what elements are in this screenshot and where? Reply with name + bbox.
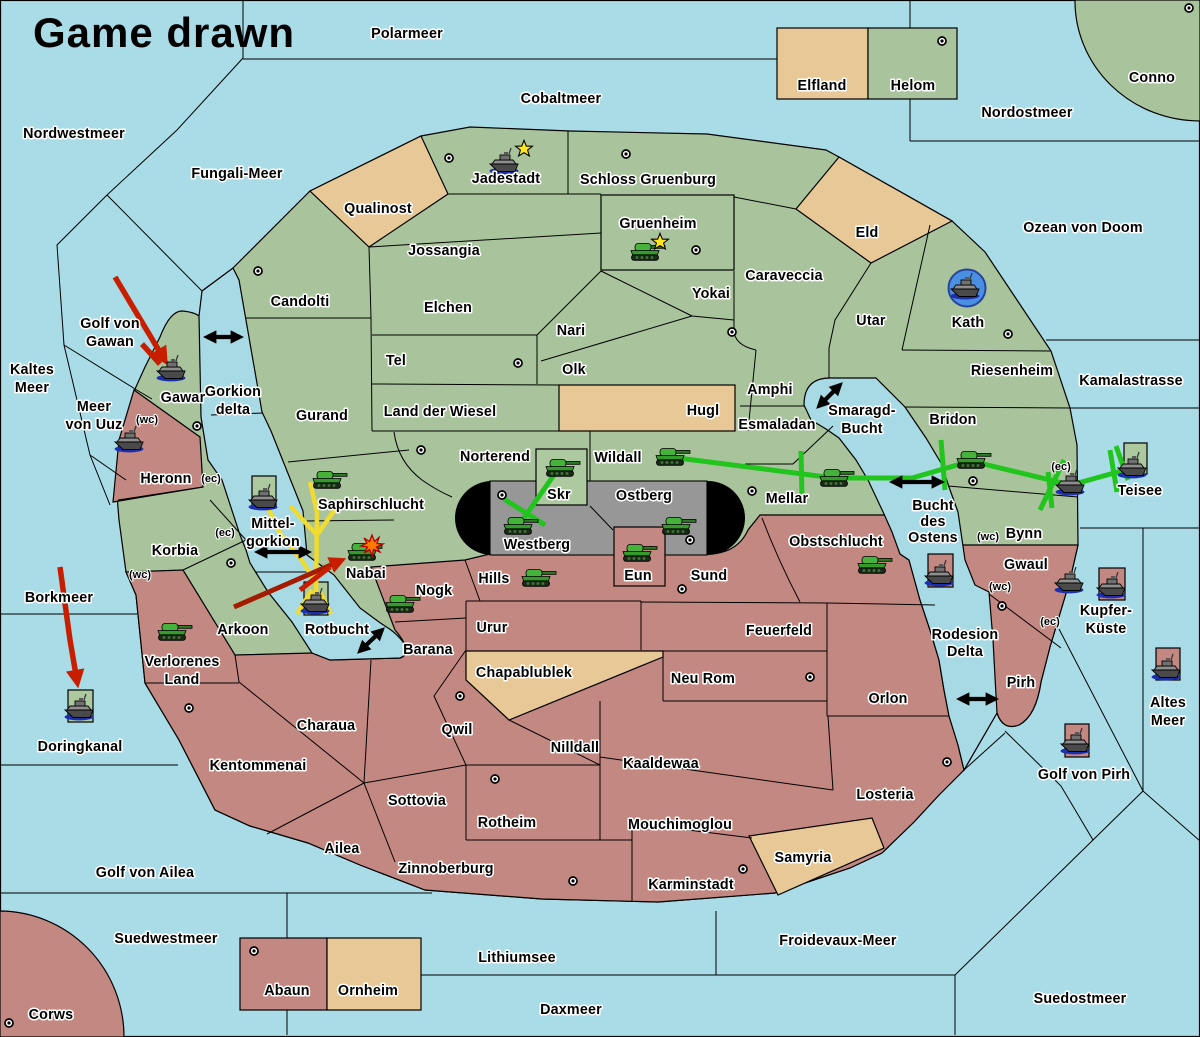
svg-text:von Uuz: von Uuz — [66, 417, 123, 433]
svg-text:Suedostmeer: Suedostmeer — [1034, 991, 1127, 1007]
svg-text:Lithiumsee: Lithiumsee — [478, 950, 555, 966]
svg-text:Smaragd-: Smaragd- — [828, 403, 896, 419]
svg-text:Golf von Ailea: Golf von Ailea — [96, 865, 195, 881]
svg-text:Jadestadt: Jadestadt — [472, 171, 541, 187]
svg-text:delta: delta — [216, 402, 251, 418]
svg-text:Qualinost: Qualinost — [344, 201, 412, 217]
svg-text:Bucht: Bucht — [912, 498, 954, 514]
svg-text:Conno: Conno — [1129, 70, 1175, 86]
svg-text:Gwaul: Gwaul — [1004, 557, 1048, 573]
svg-text:Feuerfeld: Feuerfeld — [746, 623, 812, 639]
svg-text:Urur: Urur — [477, 620, 508, 636]
svg-text:Bynn: Bynn — [1006, 526, 1043, 542]
svg-text:Orlon: Orlon — [868, 691, 907, 707]
svg-text:Wildall: Wildall — [594, 450, 641, 466]
svg-text:Obstschlucht: Obstschlucht — [789, 534, 883, 550]
svg-text:(wc): (wc) — [136, 414, 158, 426]
svg-text:Fungali-Meer: Fungali-Meer — [191, 166, 283, 182]
svg-text:Hills: Hills — [478, 571, 509, 587]
svg-text:Heronn: Heronn — [140, 471, 191, 487]
svg-text:Cobaltmeer: Cobaltmeer — [521, 91, 602, 107]
svg-text:Nordostmeer: Nordostmeer — [981, 105, 1072, 121]
svg-text:Abaun: Abaun — [264, 983, 309, 999]
svg-text:Neu Rom: Neu Rom — [671, 671, 735, 687]
svg-text:Nari: Nari — [557, 323, 586, 339]
svg-text:Amphi: Amphi — [747, 382, 792, 398]
svg-text:Kamalastrasse: Kamalastrasse — [1079, 373, 1183, 389]
svg-text:Bucht: Bucht — [841, 421, 883, 437]
svg-text:Gurand: Gurand — [296, 408, 348, 424]
svg-text:Mellar: Mellar — [766, 491, 809, 507]
svg-text:Ornheim: Ornheim — [338, 983, 398, 999]
svg-text:Charaua: Charaua — [297, 718, 356, 734]
svg-text:Eun: Eun — [624, 568, 652, 584]
svg-text:Korbia: Korbia — [152, 543, 199, 559]
svg-text:Gorkion: Gorkion — [205, 384, 261, 400]
svg-text:gorkion: gorkion — [246, 534, 300, 550]
svg-text:Esmaladan: Esmaladan — [738, 417, 815, 433]
svg-text:Nordwestmeer: Nordwestmeer — [23, 126, 125, 142]
svg-text:Nogk: Nogk — [416, 583, 453, 599]
svg-text:Doringkanal: Doringkanal — [38, 739, 123, 755]
svg-text:Kentommenai: Kentommenai — [210, 758, 307, 774]
svg-text:Land der Wiesel: Land der Wiesel — [384, 404, 497, 420]
svg-text:Sottovia: Sottovia — [388, 793, 447, 809]
svg-text:Altes: Altes — [1150, 695, 1186, 711]
svg-text:Teisee: Teisee — [1118, 483, 1163, 499]
svg-text:Rotbucht: Rotbucht — [305, 622, 369, 638]
svg-text:Froidevaux-Meer: Froidevaux-Meer — [779, 933, 897, 949]
svg-text:Meer: Meer — [15, 380, 49, 396]
svg-text:Jossangia: Jossangia — [408, 243, 481, 259]
svg-text:Meer: Meer — [77, 399, 111, 415]
svg-text:Daxmeer: Daxmeer — [540, 1002, 602, 1018]
svg-text:Golf von Pirh: Golf von Pirh — [1038, 767, 1130, 783]
svg-text:Losteria: Losteria — [856, 787, 914, 803]
svg-text:Candolti: Candolti — [271, 294, 330, 310]
svg-text:Rodesion: Rodesion — [932, 627, 999, 643]
svg-text:Barana: Barana — [403, 642, 454, 658]
svg-text:Mittel-: Mittel- — [251, 516, 295, 532]
svg-text:Borkmeer: Borkmeer — [25, 590, 94, 606]
svg-text:Zinnoberburg: Zinnoberburg — [398, 861, 493, 877]
svg-text:Olk: Olk — [562, 362, 586, 378]
svg-text:Nabai: Nabai — [346, 566, 386, 582]
svg-text:(wc): (wc) — [989, 581, 1011, 593]
svg-text:Golf von: Golf von — [80, 316, 140, 332]
svg-text:Ostens: Ostens — [908, 530, 958, 546]
svg-text:(ec): (ec) — [215, 527, 235, 539]
svg-text:Arkoon: Arkoon — [217, 622, 268, 638]
svg-text:Elchen: Elchen — [424, 300, 472, 316]
svg-text:Corws: Corws — [29, 1007, 74, 1023]
svg-text:Kath: Kath — [952, 315, 985, 331]
svg-text:Verlorenes: Verlorenes — [144, 654, 219, 670]
svg-text:Sund: Sund — [691, 568, 728, 584]
svg-text:Mouchimoglou: Mouchimoglou — [628, 817, 732, 833]
svg-text:Land: Land — [165, 672, 200, 688]
svg-text:Kaaldewaa: Kaaldewaa — [623, 756, 700, 772]
svg-text:Gawar: Gawar — [161, 390, 206, 406]
svg-text:Eld: Eld — [856, 225, 879, 241]
svg-text:(ec): (ec) — [1040, 616, 1060, 628]
svg-text:Game drawn: Game drawn — [33, 9, 295, 56]
svg-text:Tel: Tel — [386, 353, 406, 369]
svg-text:Utar: Utar — [856, 313, 886, 329]
svg-text:Nilldall: Nilldall — [551, 740, 599, 756]
svg-text:Riesenheim: Riesenheim — [971, 363, 1053, 379]
svg-text:Caraveccia: Caraveccia — [745, 268, 823, 284]
svg-text:Elfland: Elfland — [797, 78, 846, 94]
svg-text:(wc): (wc) — [129, 569, 151, 581]
svg-text:(ec): (ec) — [1051, 461, 1071, 473]
svg-text:Delta: Delta — [947, 644, 984, 660]
svg-text:Pirh: Pirh — [1007, 675, 1036, 691]
svg-text:Chapablublek: Chapablublek — [476, 665, 572, 681]
svg-text:Gruenheim: Gruenheim — [619, 216, 696, 232]
svg-text:(wc): (wc) — [977, 531, 999, 543]
svg-text:Kupfer-: Kupfer- — [1080, 603, 1132, 619]
svg-text:Schloss Gruenburg: Schloss Gruenburg — [580, 172, 716, 188]
svg-text:Qwil: Qwil — [442, 722, 473, 738]
svg-text:Ailea: Ailea — [324, 841, 360, 857]
svg-text:Rotheim: Rotheim — [478, 815, 537, 831]
svg-text:Skr: Skr — [547, 487, 571, 503]
svg-text:Karminstadt: Karminstadt — [648, 877, 734, 893]
svg-text:(ec): (ec) — [201, 473, 221, 485]
svg-text:Saphirschlucht: Saphirschlucht — [318, 497, 424, 513]
svg-text:Ozean von Doom: Ozean von Doom — [1023, 220, 1143, 236]
svg-text:Meer: Meer — [1151, 713, 1185, 729]
svg-text:Samyria: Samyria — [774, 850, 832, 866]
svg-text:Gawan: Gawan — [86, 334, 134, 350]
svg-text:Hugl: Hugl — [687, 403, 720, 419]
svg-text:Norterend: Norterend — [460, 449, 530, 465]
svg-text:Suedwestmeer: Suedwestmeer — [114, 931, 218, 947]
svg-text:Yokai: Yokai — [692, 286, 730, 302]
svg-text:des: des — [920, 514, 945, 530]
svg-text:Helom: Helom — [891, 78, 936, 94]
svg-text:Kaltes: Kaltes — [10, 362, 54, 378]
svg-text:Ostberg: Ostberg — [616, 488, 672, 504]
svg-text:Bridon: Bridon — [929, 412, 976, 428]
svg-text:Küste: Küste — [1086, 621, 1127, 637]
svg-text:Westberg: Westberg — [504, 537, 570, 553]
svg-text:Polarmeer: Polarmeer — [371, 26, 443, 42]
